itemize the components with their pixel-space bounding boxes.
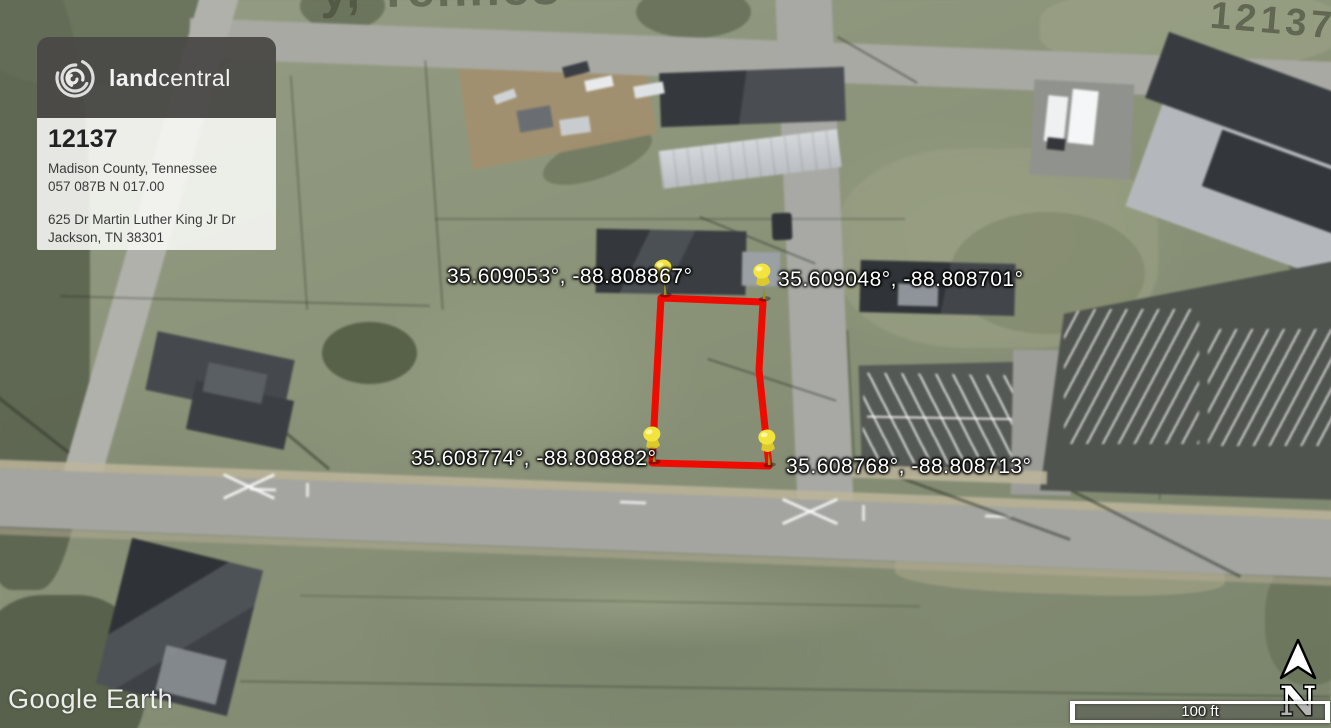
coord-label-se: 35.608768°, -88.808713° (786, 455, 1032, 479)
listing-address-line1: 625 Dr Martin Luther King Jr Dr (48, 211, 270, 229)
building-roof (659, 67, 846, 127)
landcentral-wordmark: landcentral (109, 65, 231, 92)
truck-cab (1046, 137, 1065, 151)
coord-label-ne: 35.609048°, -88.808701° (778, 268, 1024, 292)
parking-stripes (1064, 309, 1199, 444)
edge-tick (862, 505, 865, 521)
map-pin-se[interactable] (751, 427, 785, 470)
listing-card-header: landcentral (37, 37, 276, 118)
listing-parcel-number: 057 087B N 017.00 (48, 178, 270, 196)
spacer (48, 196, 270, 211)
listing-id: 12137 (48, 126, 270, 152)
pushpin-icon (746, 261, 780, 304)
parking-stripes (1208, 329, 1331, 447)
edge-tick (306, 483, 309, 497)
brand-land: land (109, 65, 158, 91)
listing-address-line2: Jackson, TN 38301 (48, 229, 270, 247)
field-line (435, 218, 905, 220)
tree-mid-left (322, 322, 417, 384)
map-pin-ne[interactable] (746, 261, 780, 304)
coord-label-nw: 35.609053°, -88.808867° (447, 265, 693, 289)
google-earth-attribution: Google Earth (8, 684, 173, 715)
scale-bar-label: 100 ft (1075, 703, 1325, 720)
car-on-road (772, 213, 793, 241)
google-earth-view: y, Tennes 12137 (0, 0, 1331, 728)
landcentral-logo-icon (53, 56, 97, 100)
pushpin-icon (751, 427, 785, 470)
listing-county: Madison County, Tennessee (48, 160, 270, 178)
scale-bar: 100 ft (1070, 701, 1330, 723)
coord-label-sw: 35.608774°, -88.808882° (411, 447, 657, 471)
listing-card-body: 12137 Madison County, Tennessee 057 087B… (37, 118, 276, 250)
brand-central: central (158, 65, 231, 91)
north-arrow-icon (1281, 640, 1315, 678)
